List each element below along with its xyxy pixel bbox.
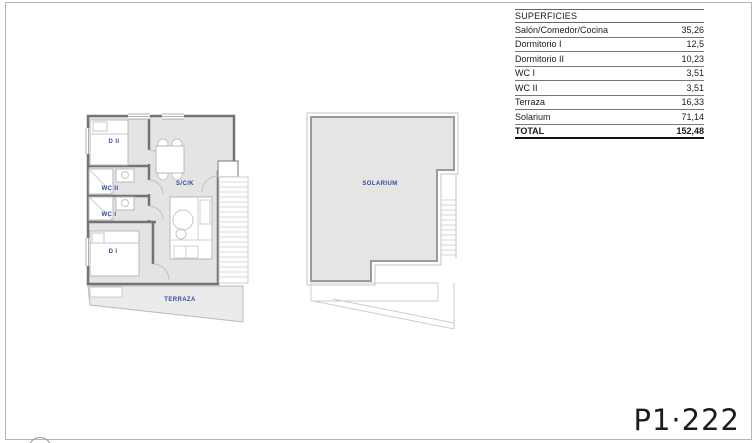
table-row: Dormitorio II 10,23 <box>515 52 704 67</box>
row-value: 16,33 <box>681 97 704 107</box>
compass-arc-icon <box>29 438 52 443</box>
solarium-area <box>311 117 454 281</box>
row-value: 12,5 <box>686 39 704 49</box>
row-value: 3,51 <box>686 68 704 78</box>
entry-landing <box>218 161 238 177</box>
row-value: 35,26 <box>681 25 704 35</box>
solarium-plan <box>307 113 458 329</box>
row-label: Salón/Comedor/Cocina <box>515 25 608 35</box>
plan-sheet: D II WC II WC I D I S/C/K TERRAZA SOLARI… <box>0 0 756 443</box>
row-label: WC II <box>515 83 538 93</box>
room-label-dormitorio1: D I <box>109 249 118 255</box>
room-label-salon: S/C/K <box>176 181 194 187</box>
row-value: 3,51 <box>686 83 704 93</box>
stairs-icon <box>219 177 248 283</box>
row-value: 71,14 <box>681 112 704 122</box>
sheet-code: P1·222 <box>633 403 740 437</box>
room-label-wc2: WC II <box>102 186 119 192</box>
room-label-dormitorio2: D II <box>109 139 120 145</box>
surfaces-table: SUPERFICIES Salón/Comedor/Cocina 35,26 D… <box>515 9 704 139</box>
lower-floor-outline <box>311 283 454 329</box>
row-value: 10,23 <box>681 54 704 64</box>
room-label-wc1: WC I <box>102 212 117 218</box>
table-row: Terraza 16,33 <box>515 96 704 111</box>
row-label: Terraza <box>515 97 545 107</box>
table-row: Dormitorio I 12,5 <box>515 38 704 53</box>
row-label: Dormitorio I <box>515 39 562 49</box>
room-label-solarium: SOLARIUM <box>362 181 397 187</box>
table-row-total: TOTAL 152,48 <box>515 125 704 140</box>
row-label: WC I <box>515 68 535 78</box>
table-row: WC II 3,51 <box>515 81 704 96</box>
surfaces-table-title: SUPERFICIES <box>515 10 704 23</box>
total-label: TOTAL <box>515 126 544 136</box>
planter-icon <box>90 287 122 297</box>
kitchen-island-icon <box>170 197 212 259</box>
stairs-icon <box>441 174 456 258</box>
table-row: Salón/Comedor/Cocina 35,26 <box>515 23 704 38</box>
sink-icon <box>116 169 134 182</box>
sink-icon <box>116 197 134 210</box>
table-row: WC I 3,51 <box>515 67 704 82</box>
room-label-terraza: TERRAZA <box>164 297 195 303</box>
table-row: Solarium 71,14 <box>515 110 704 125</box>
row-label: Solarium <box>515 112 551 122</box>
total-value: 152,48 <box>676 126 704 136</box>
row-label: Dormitorio II <box>515 54 564 64</box>
